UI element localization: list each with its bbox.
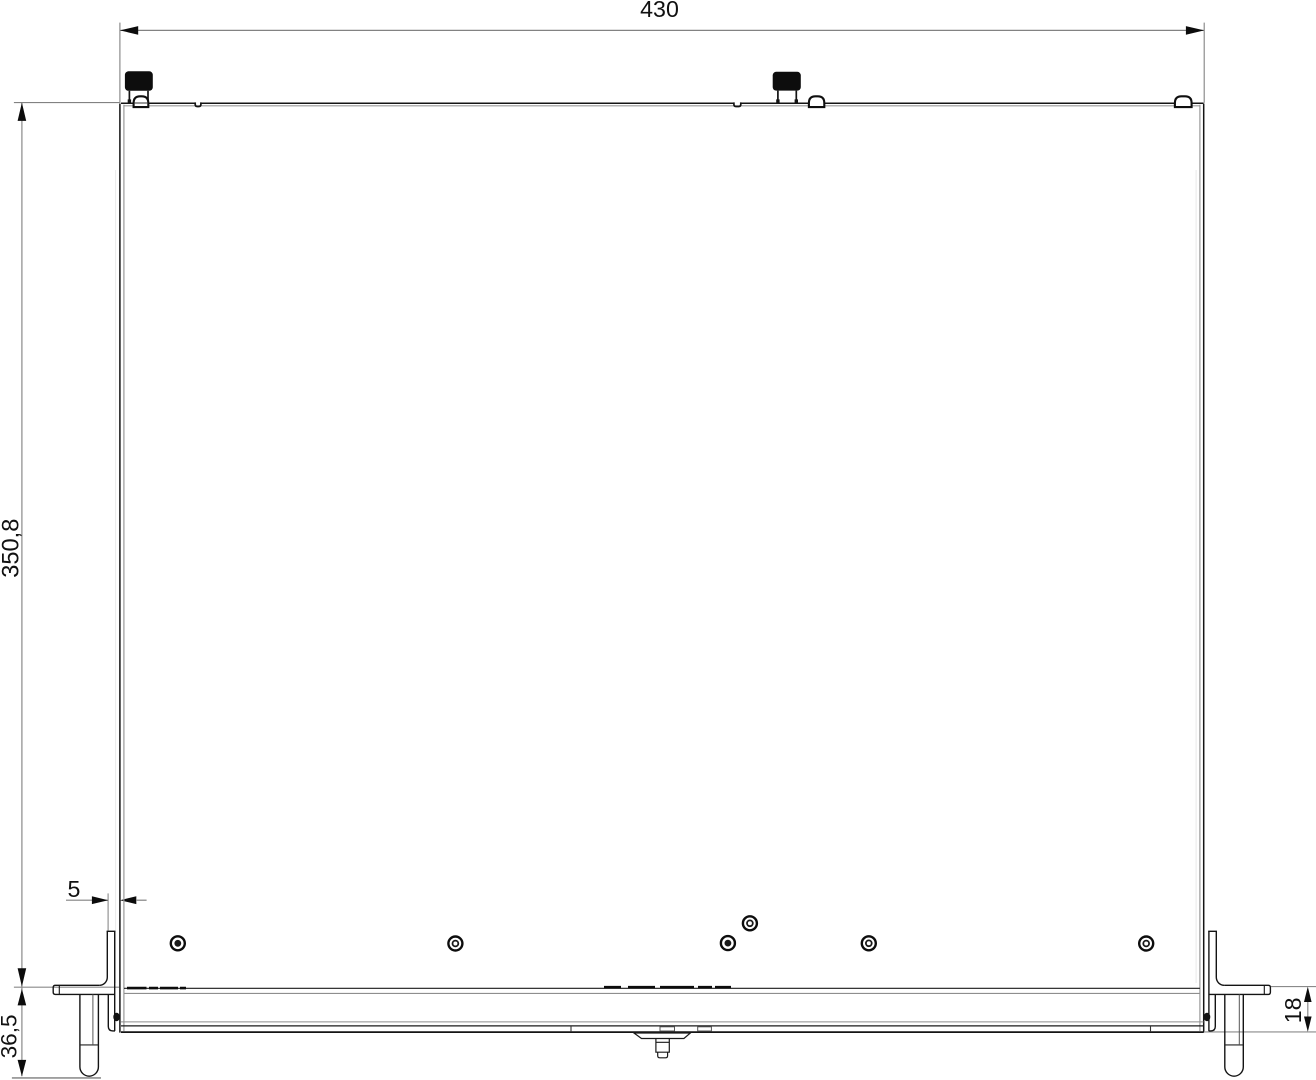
svg-text:36,5: 36,5 <box>0 1014 22 1058</box>
svg-text:18: 18 <box>1280 998 1306 1024</box>
svg-text:430: 430 <box>640 0 679 22</box>
svg-text:5: 5 <box>68 876 81 902</box>
svg-text:350,8: 350,8 <box>0 519 24 578</box>
